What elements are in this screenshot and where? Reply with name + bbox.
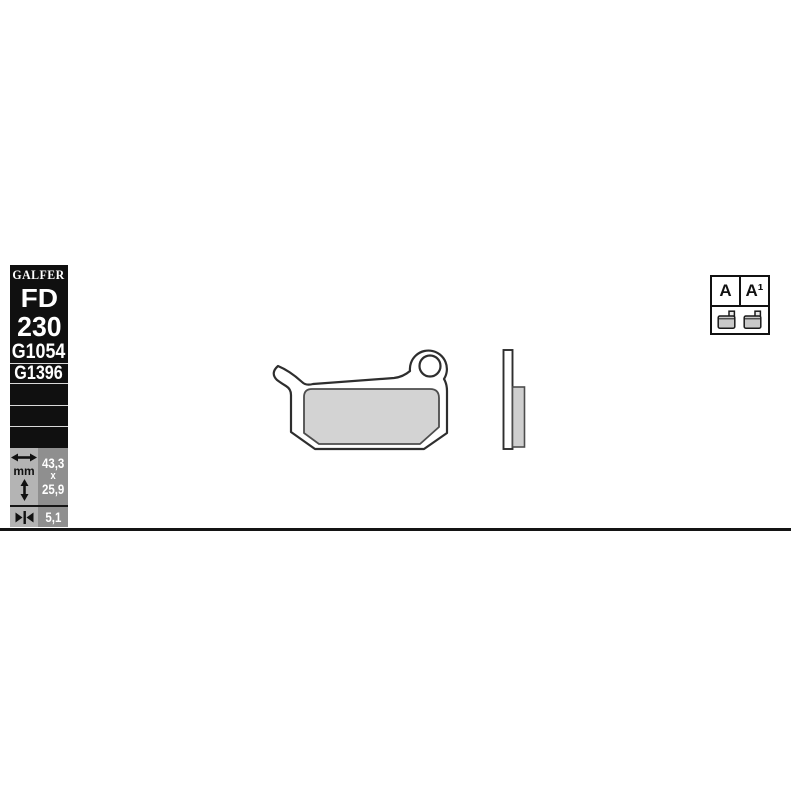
model-prefix-row: FD [10,285,68,312]
variant-a-label: A [719,281,731,301]
variant-a-cell: A [712,277,741,305]
horizontal-double-arrow-icon [11,452,37,463]
mounting-hole [420,356,441,377]
catalog-page: { "spec_panel": { "brand": "GALFER", "mo… [0,0,800,800]
size-icon-cell: mm [10,448,38,505]
spec-panel: GALFER FD 230 G1054 G1396 [10,265,68,448]
technical-drawing [0,0,800,800]
empty-spec-row [10,405,68,427]
pinch-arrows-icon [14,511,35,524]
backing-plate-side [504,350,513,449]
height-value: 25,9 [42,482,64,497]
size-value-cell: 43,3 x 25,9 [38,448,68,505]
backing-plate-outline [274,351,447,449]
reference-code-row: G1054 [10,341,68,363]
model-number-row: 230 [10,312,68,341]
reference-code-1: G1054 [12,341,66,363]
friction-material-side [513,387,525,447]
reference-code-2: G1396 [15,363,63,383]
brand-text: GALFER [13,268,65,283]
brake-pad-side-view [504,350,525,449]
variant-a1-cell: A¹ [741,277,768,305]
brake-pad-icon [717,310,737,330]
variant-a1-label: A¹ [746,281,764,301]
brake-pad-front-view [274,351,447,449]
variant-labels-row: A A¹ [712,277,768,307]
vertical-double-arrow-icon [19,479,30,501]
brand-logo: GALFER [10,265,68,285]
friction-material-front [304,389,439,444]
reference-code-row: G1396 [10,363,68,383]
brake-pad-icon [743,310,763,330]
thickness-icon-cell [10,507,38,527]
size-row: mm 43,3 x 25,9 [10,448,68,505]
thickness-value-cell: 5,1 [38,507,68,527]
variant-pads-row [712,307,768,333]
variant-legend-box: A A¹ [710,275,770,335]
model-prefix: FD [20,285,57,312]
unit-label: mm [13,465,34,477]
thickness-row: 5,1 [10,507,68,527]
model-number: 230 [17,312,61,341]
empty-spec-row [10,383,68,405]
dimension-separator: x [50,471,55,482]
dimensions-block: mm 43,3 x 25,9 5,1 [10,448,68,527]
width-value: 43,3 [42,456,64,471]
baseline-rule [0,528,791,531]
thickness-value: 5,1 [45,510,61,525]
empty-spec-row [10,426,68,448]
